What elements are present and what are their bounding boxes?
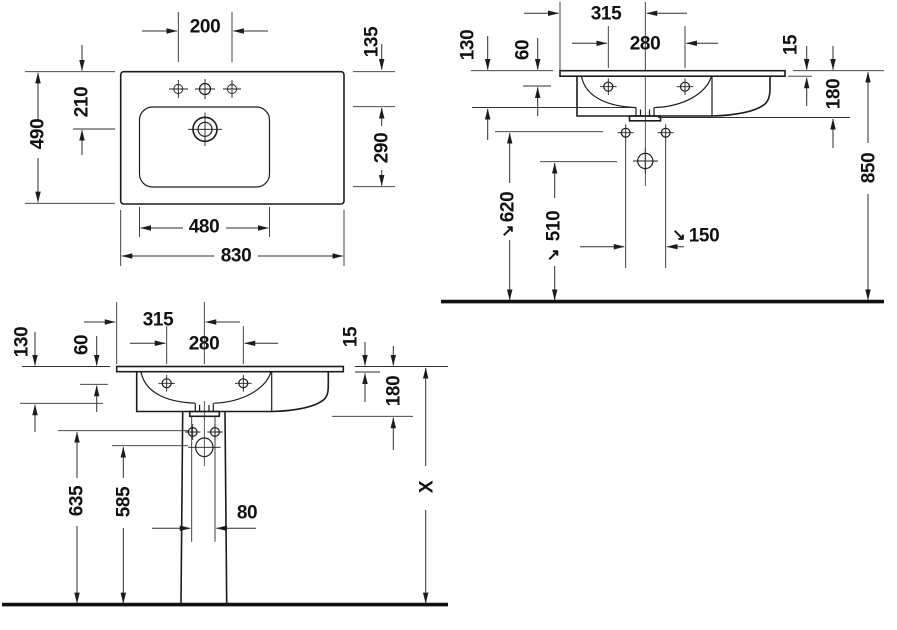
dim-ped-front-height: 180 xyxy=(384,376,403,407)
dim-plan-rim-to-basin: 135 xyxy=(362,27,381,58)
wall-extension-lines xyxy=(471,2,884,162)
dim-ped-rim-thickness: 15 xyxy=(342,327,361,347)
dim-wall-fixing-centers: 280 xyxy=(630,35,661,54)
dim-ped-cutout-width: 80 xyxy=(237,504,257,523)
drawing-linework xyxy=(0,0,897,630)
pedestal-dimension-arrows xyxy=(35,322,426,603)
dim-ped-rim-to-fixing: 60 xyxy=(73,335,92,355)
plan-bowl-outline xyxy=(140,107,270,187)
technical-drawing-canvas: 200 135 490 210 290 480 830 315 280 130 … xyxy=(0,0,897,630)
wall-basin-holes xyxy=(600,78,693,95)
dim-ped-rim-to-bowl: 130 xyxy=(13,327,32,358)
ref-arrow-ne-icon: ↗ xyxy=(501,224,514,240)
plan-drain xyxy=(188,113,222,147)
pedestal-basin-body xyxy=(137,372,329,412)
ref-arrow-ne-icon: ↗ xyxy=(547,248,560,264)
dim-plan-overall-width: 830 xyxy=(221,247,252,266)
pedestal-column xyxy=(181,412,227,603)
wall-outlet-hole xyxy=(633,149,658,174)
dim-wall-fixing-height: 620 xyxy=(499,192,518,223)
pedestal-basin-holes xyxy=(158,375,251,392)
dim-ped-siphon-height: 585 xyxy=(114,487,133,518)
wall-rim xyxy=(560,71,785,77)
pedestal-view xyxy=(2,302,448,605)
wall-dimension-arrows xyxy=(488,13,868,300)
pedestal-extension-lines xyxy=(20,302,448,446)
dim-plan-basin-width: 480 xyxy=(189,218,220,237)
wall-body xyxy=(577,76,770,116)
dim-ped-variable-height: X xyxy=(418,481,437,493)
dim-wall-outlet-centers: 150 xyxy=(689,227,720,246)
wall-bolt-holes xyxy=(618,124,674,141)
dim-wall-rim-to-bowl: 130 xyxy=(459,30,478,61)
pedestal-bowl-curve xyxy=(141,372,271,404)
plan-faucet-holes xyxy=(169,79,241,99)
dim-ped-fixing-height: 635 xyxy=(67,486,86,517)
wall-bowl-curve xyxy=(582,76,712,107)
dim-wall-front-height: 180 xyxy=(825,79,844,110)
dim-wall-edge-to-drain: 315 xyxy=(591,5,622,24)
dim-plan-overall-depth: 490 xyxy=(28,119,47,150)
dim-wall-rim-to-fixing: 60 xyxy=(514,40,533,60)
dim-ped-fixing-centers: 280 xyxy=(189,335,220,354)
pedestal-rim xyxy=(117,367,344,372)
dim-wall-rim-height: 850 xyxy=(860,153,879,184)
wall-mount-view xyxy=(441,2,884,302)
dim-plan-rim-to-drain: 210 xyxy=(73,87,92,118)
dim-wall-outlet-height: 510 xyxy=(544,211,563,242)
dim-wall-rim-thickness: 15 xyxy=(782,35,801,55)
dim-ped-edge-to-drain: 315 xyxy=(143,311,174,330)
dim-plan-faucet-centers: 200 xyxy=(190,18,221,37)
dim-plan-basin-depth: 290 xyxy=(372,133,391,164)
ref-arrow-se-icon: ↘ xyxy=(672,228,685,244)
